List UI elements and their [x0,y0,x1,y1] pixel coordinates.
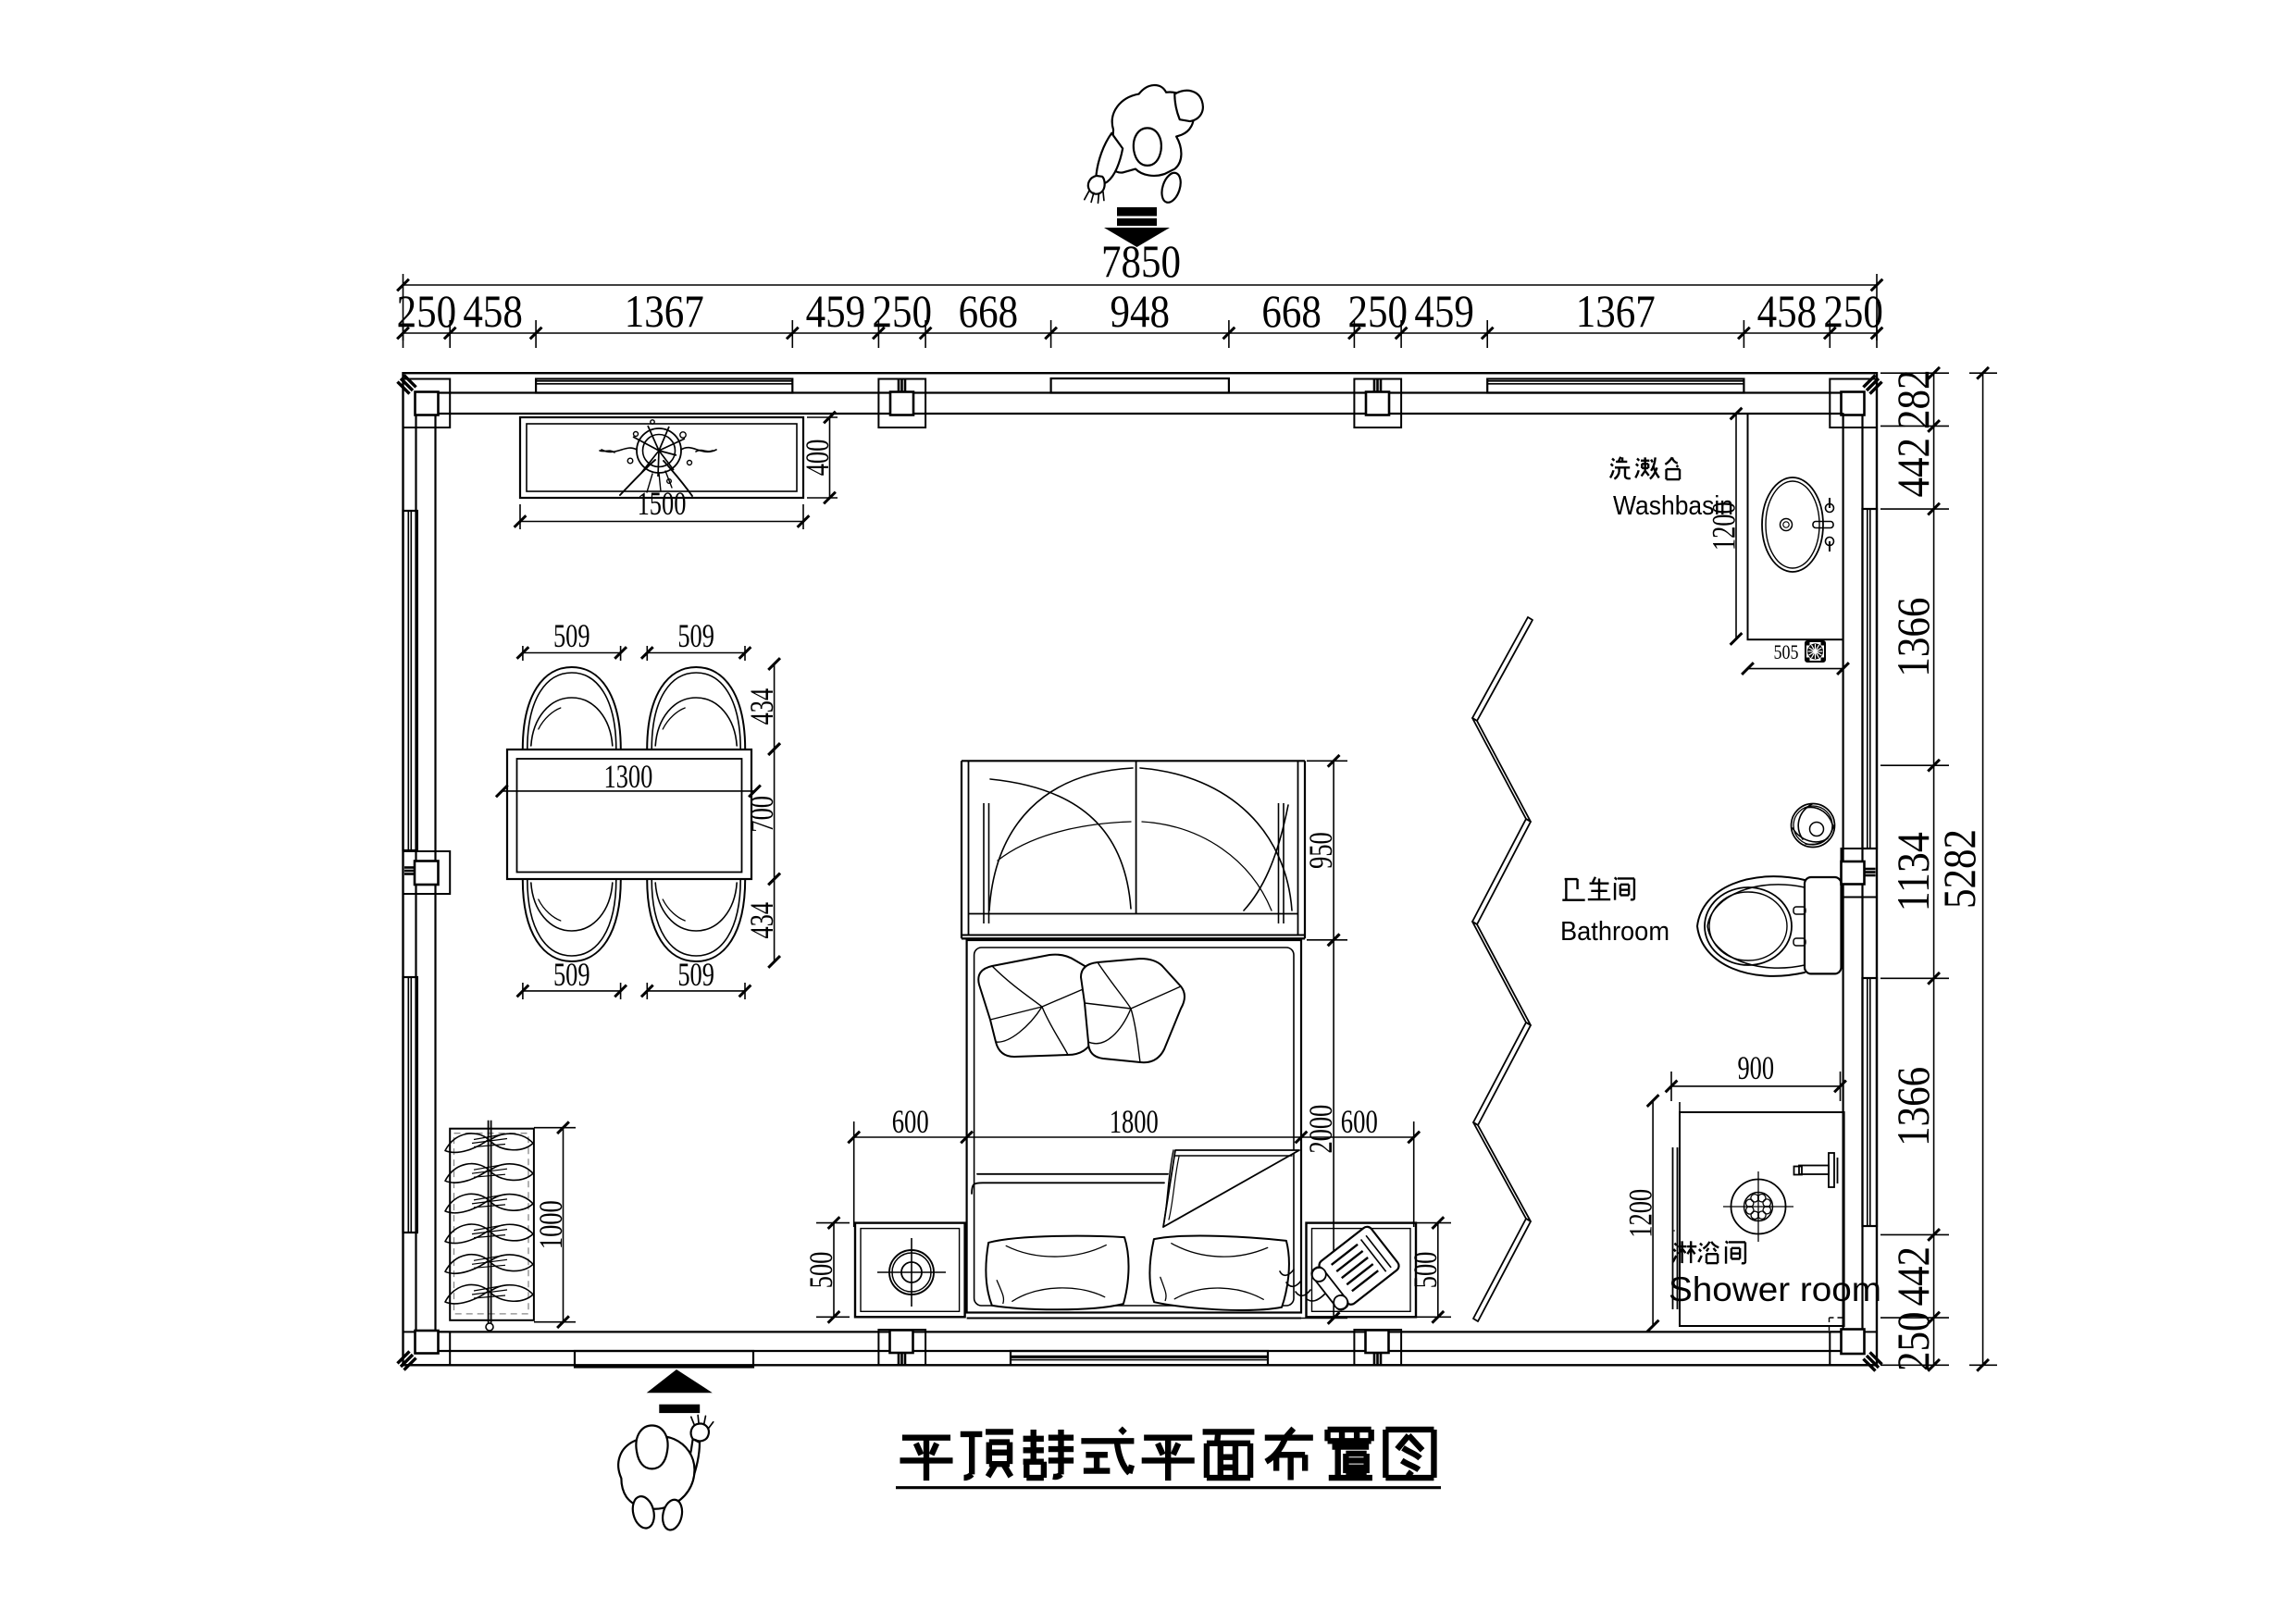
svg-text:600: 600 [1341,1103,1378,1140]
svg-text:509: 509 [553,617,590,654]
svg-text:1000: 1000 [532,1200,569,1249]
svg-text:500: 500 [802,1252,839,1289]
svg-text:Shower room: Shower room [1669,1270,1881,1308]
svg-text:442: 442 [1887,1246,1939,1307]
svg-text:1367: 1367 [1576,285,1656,337]
svg-text:434: 434 [743,902,780,939]
svg-text:250: 250 [1348,285,1409,337]
svg-text:900: 900 [1737,1049,1774,1086]
svg-text:1134: 1134 [1887,832,1939,911]
svg-text:458: 458 [463,285,523,337]
svg-text:700: 700 [743,796,780,833]
svg-text:1200: 1200 [1622,1189,1659,1238]
svg-text:1500: 1500 [638,485,687,522]
svg-text:459: 459 [1414,285,1474,337]
svg-text:509: 509 [677,617,714,654]
svg-text:1366: 1366 [1887,1067,1939,1146]
svg-text:668: 668 [959,285,1019,337]
svg-text:948: 948 [1111,285,1171,337]
svg-text:5282: 5282 [1933,829,1985,909]
svg-text:282: 282 [1887,370,1939,430]
svg-text:250: 250 [397,285,457,337]
svg-text:950: 950 [1302,832,1339,869]
svg-text:Bathroom: Bathroom [1560,917,1669,947]
svg-text:1367: 1367 [625,285,704,337]
svg-text:1800: 1800 [1110,1103,1159,1140]
svg-text:459: 459 [806,285,866,337]
svg-text:458: 458 [1757,285,1818,337]
svg-text:434: 434 [743,688,780,725]
svg-text:505: 505 [1774,640,1799,663]
svg-text:442: 442 [1887,438,1939,498]
svg-text:1366: 1366 [1887,598,1939,677]
svg-text:668: 668 [1261,285,1322,337]
svg-text:600: 600 [892,1103,929,1140]
svg-text:1300: 1300 [604,758,653,795]
svg-text:250: 250 [873,285,933,337]
svg-text:Washbasin: Washbasin [1613,491,1733,521]
svg-text:500: 500 [1407,1252,1444,1289]
svg-text:2000: 2000 [1302,1105,1339,1154]
svg-text:250: 250 [1887,1311,1939,1371]
svg-text:250: 250 [1823,285,1883,337]
